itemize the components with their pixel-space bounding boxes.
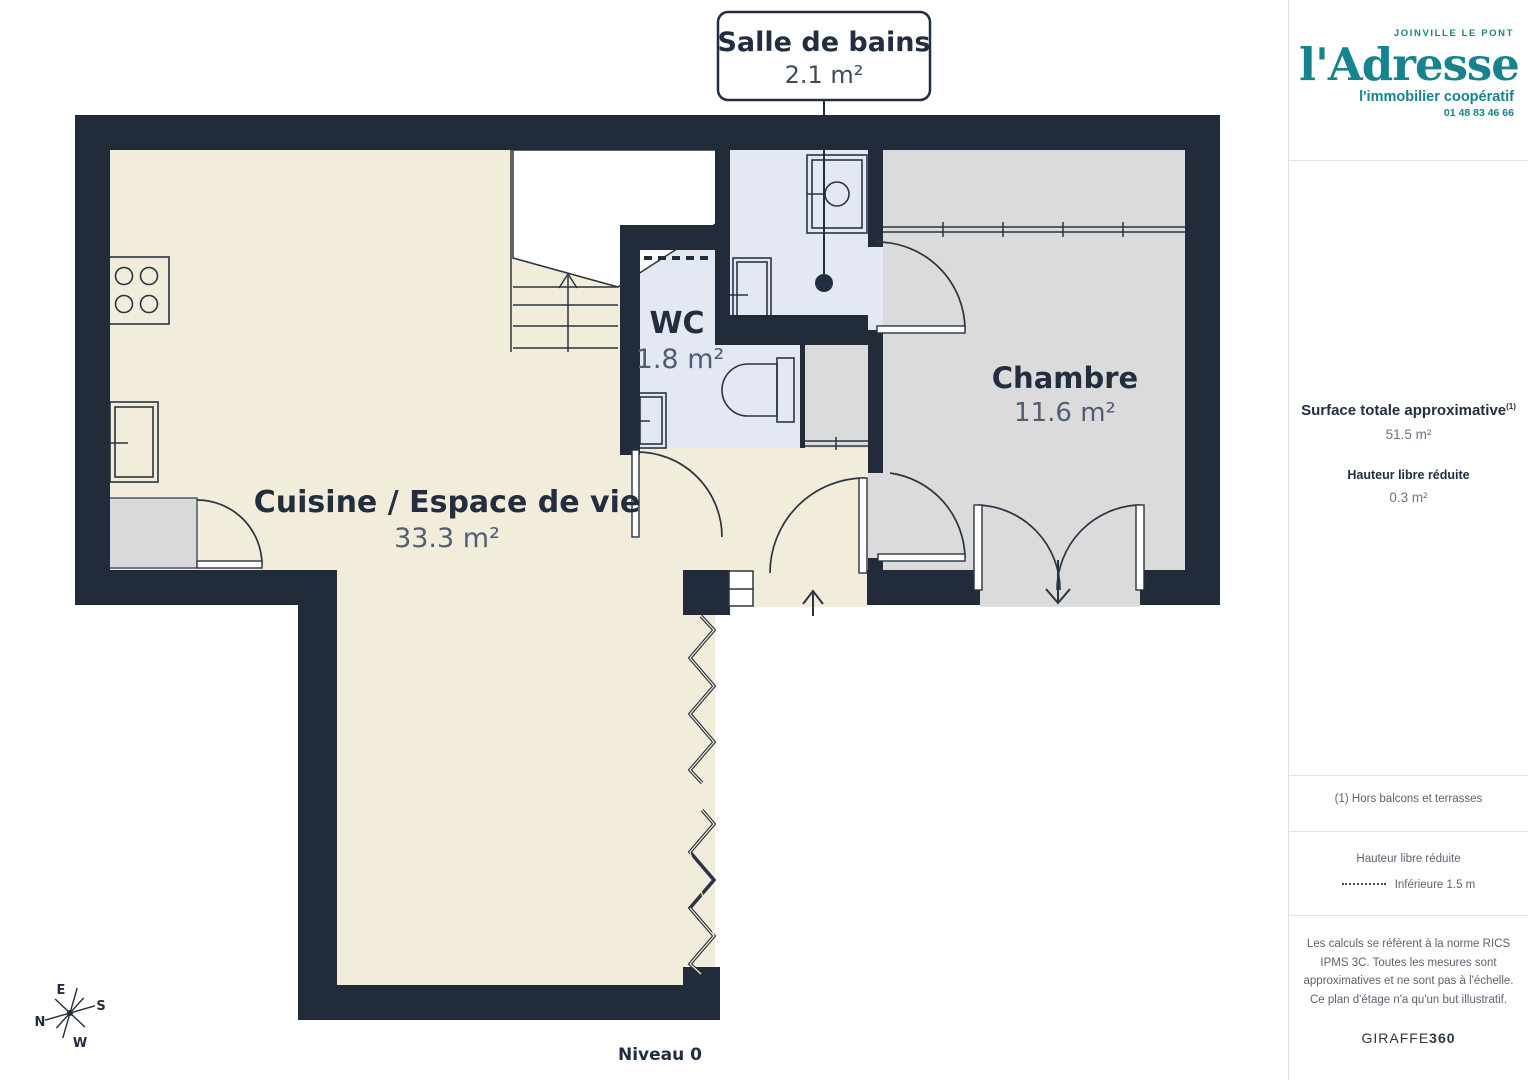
level-label: Niveau 0 [618,1045,702,1065]
surface-summary: Surface totale approximative(1) 51.5 m² … [1289,402,1528,505]
compass-s: S [96,999,105,1014]
kitchen-closet [108,498,197,568]
divider [1289,915,1528,916]
giraffe360-suffix: 360 [1429,1030,1455,1046]
callout-title: Salle de bains [717,27,930,58]
room-label-wc: WC [649,306,704,341]
footnote: (1) Hors balcons et terrasses [1289,793,1528,805]
compass-e: E [57,983,66,998]
disclaimer-text: Les calculs se réfèrent à la norme RICS … [1303,935,1514,1010]
bedroom-door-leaf [878,554,965,561]
floor-hallway [620,448,868,570]
compass-rose-icon: E S N W [35,983,106,1051]
floor-entrance-opening [753,570,867,607]
room-label-chambre: Chambre [992,361,1138,395]
legend-title: Hauteur libre réduite [1289,853,1528,865]
agency-name: l'Adresse [1299,41,1514,88]
divider [1289,775,1528,776]
room-label-cuisine: Cuisine / Espace de vie [254,485,640,520]
divider [1289,160,1528,161]
giraffe360-name: GIRAFFE [1361,1030,1429,1046]
closet-door-leaf [197,561,262,568]
floor-bathroom [730,150,868,333]
floor-bathroom-door-gap [868,247,883,330]
floor-fills [108,150,1185,985]
callout-anchor-dot [815,274,833,292]
entrance-sidelight [729,571,753,606]
entrance-door-leaf [859,478,867,573]
bathroom-door-leaf [877,326,965,333]
floor-plan-svg: Salle de bains 2.1 m² WC 1.8 m² Chambre … [0,0,1288,1080]
legend-item: Inférieure 1.5 m [1395,879,1476,891]
giraffe360-logo: GIRAFFE360 [1289,1030,1528,1046]
surface-title-text: Surface totale approximative [1301,402,1506,419]
agency-logo: JOINVILLE LE PONT l'Adresse l'immobilier… [1299,28,1514,119]
agency-tagline: l'immobilier coopératif [1299,89,1514,105]
double-door-right-leaf [1136,505,1144,590]
reduced-height-legend: Hauteur libre réduite Inférieure 1.5 m [1289,853,1528,891]
compass-w: W [73,1036,87,1051]
reduced-height-title: Hauteur libre réduite [1289,468,1528,482]
divider [1289,831,1528,832]
agency-phone: 01 48 83 46 66 [1299,107,1514,119]
reduced-height-value: 0.3 m² [1289,490,1528,505]
callout-area: 2.1 m² [785,61,864,89]
floor-closet-shaft [805,345,868,448]
plan-area: Salle de bains 2.1 m² WC 1.8 m² Chambre … [0,0,1288,1080]
floor-bedroom-door-gap [868,473,883,558]
info-sidebar: JOINVILLE LE PONT l'Adresse l'immobilier… [1288,0,1528,1080]
surface-title: Surface totale approximative(1) [1289,402,1528,419]
room-area-chambre: 11.6 m² [1014,398,1116,428]
room-area-wc: 1.8 m² [636,344,725,375]
dotted-line-sample [1342,883,1386,885]
surface-title-superscript: (1) [1506,402,1516,411]
floor-living-lower [337,570,715,985]
room-area-cuisine: 33.3 m² [394,523,500,554]
surface-value: 51.5 m² [1289,427,1528,442]
double-door-left-leaf [974,505,982,590]
compass-n: N [35,1015,46,1030]
floorplan-page: Salle de bains 2.1 m² WC 1.8 m² Chambre … [0,0,1528,1080]
